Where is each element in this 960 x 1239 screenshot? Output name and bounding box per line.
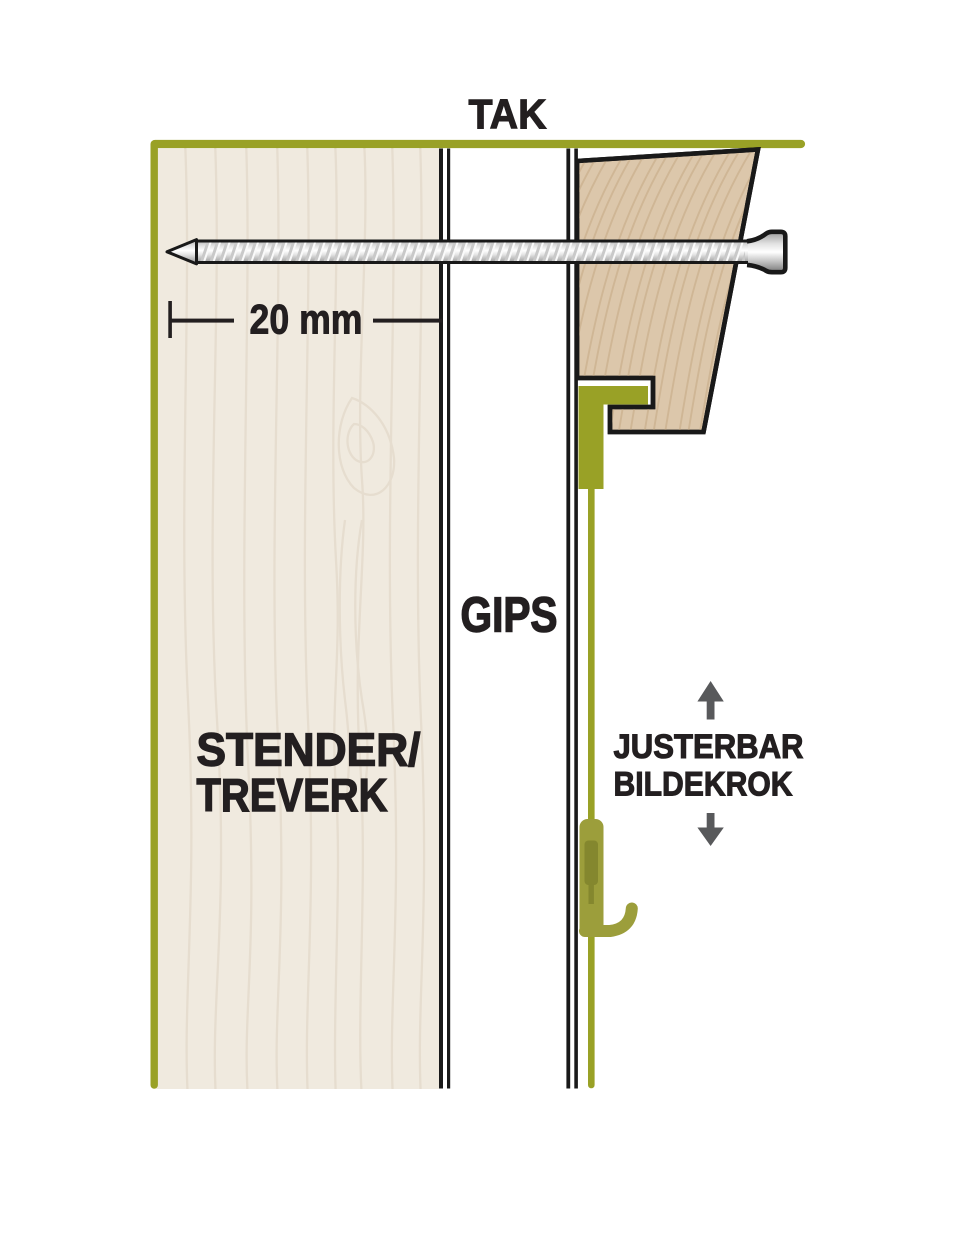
svg-text:TREVERK: TREVERK [197, 769, 388, 821]
svg-text:GIPS: GIPS [461, 589, 558, 643]
svg-text:20 mm: 20 mm [250, 296, 363, 343]
svg-text:STENDER/: STENDER/ [197, 724, 421, 776]
svg-text:TAK: TAK [469, 91, 547, 138]
svg-text:JUSTERBAR: JUSTERBAR [614, 728, 804, 766]
svg-text:BILDEKROK: BILDEKROK [614, 766, 793, 804]
